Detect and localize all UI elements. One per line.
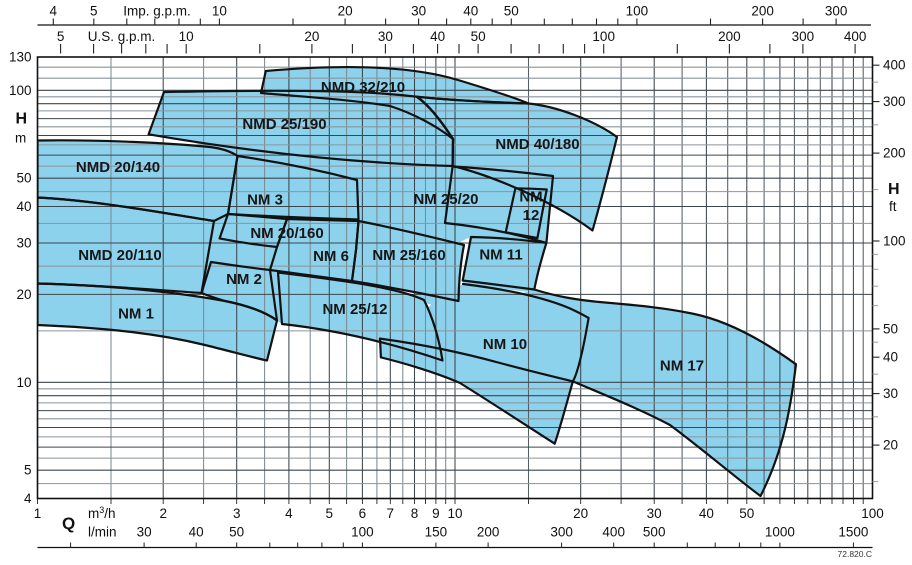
svg-text:100: 100: [626, 4, 649, 19]
svg-text:NMD 20/110: NMD 20/110: [78, 247, 161, 264]
svg-text:NM 11: NM 11: [479, 247, 522, 264]
svg-text:3: 3: [233, 506, 241, 521]
svg-text:20: 20: [338, 4, 353, 19]
svg-text:100: 100: [351, 525, 374, 540]
svg-text:5: 5: [57, 29, 65, 44]
svg-text:1000: 1000: [765, 525, 795, 540]
svg-text:5: 5: [326, 506, 334, 521]
svg-text:72.820.C: 72.820.C: [838, 549, 873, 559]
svg-text:40: 40: [430, 29, 445, 44]
svg-text:300: 300: [825, 4, 848, 19]
svg-text:NM 25/12: NM 25/12: [322, 301, 387, 318]
svg-text:1500: 1500: [838, 525, 868, 540]
svg-text:NM 25/160: NM 25/160: [372, 247, 445, 264]
svg-text:50: 50: [739, 506, 754, 521]
svg-text:10: 10: [179, 29, 194, 44]
svg-text:4: 4: [24, 491, 32, 506]
svg-text:50: 50: [504, 4, 519, 19]
svg-text:NM 1: NM 1: [118, 306, 154, 323]
svg-text:130: 130: [9, 50, 32, 65]
svg-text:2: 2: [159, 506, 167, 521]
svg-text:1: 1: [34, 506, 42, 521]
svg-text:20: 20: [16, 287, 31, 302]
svg-text:ft: ft: [889, 199, 897, 214]
svg-text:300: 300: [883, 94, 906, 109]
svg-text:12: 12: [523, 207, 540, 224]
svg-text:100: 100: [883, 234, 906, 249]
svg-text:40: 40: [883, 350, 898, 365]
svg-text:NM: NM: [519, 189, 542, 206]
svg-text:8: 8: [411, 506, 419, 521]
svg-text:10: 10: [447, 506, 462, 521]
svg-text:Q: Q: [62, 514, 75, 533]
svg-text:NM 25/20: NM 25/20: [413, 191, 478, 208]
svg-text:100: 100: [592, 29, 615, 44]
svg-text:NM 2: NM 2: [226, 271, 262, 288]
svg-text:20: 20: [573, 506, 588, 521]
svg-text:100: 100: [861, 506, 884, 521]
svg-text:40: 40: [699, 506, 714, 521]
svg-text:NM 6: NM 6: [313, 248, 349, 265]
svg-text:300: 300: [550, 525, 573, 540]
svg-text:300: 300: [792, 29, 815, 44]
svg-text:30: 30: [378, 29, 393, 44]
svg-text:H: H: [16, 111, 28, 128]
svg-text:30: 30: [883, 386, 898, 401]
svg-text:50: 50: [471, 29, 486, 44]
svg-text:200: 200: [883, 146, 906, 161]
svg-text:200: 200: [718, 29, 741, 44]
svg-text:100: 100: [9, 83, 32, 98]
svg-text:m: m: [15, 131, 26, 146]
svg-text:400: 400: [602, 525, 625, 540]
svg-text:200: 200: [477, 525, 500, 540]
svg-text:NMD 32/210: NMD 32/210: [321, 79, 405, 96]
svg-text:NMD 25/190: NMD 25/190: [242, 116, 326, 133]
svg-text:6: 6: [359, 506, 367, 521]
svg-text:U.S. g.p.m.: U.S. g.p.m.: [88, 29, 156, 44]
svg-text:50: 50: [229, 525, 244, 540]
svg-text:5: 5: [90, 4, 98, 19]
svg-text:50: 50: [16, 171, 31, 186]
svg-text:200: 200: [751, 4, 774, 19]
svg-text:150: 150: [425, 525, 448, 540]
svg-text:30: 30: [647, 506, 662, 521]
svg-text:30: 30: [137, 525, 152, 540]
svg-text:NM 17: NM 17: [660, 358, 704, 375]
svg-text:50: 50: [883, 321, 898, 336]
svg-text:4: 4: [285, 506, 293, 521]
svg-text:NMD 20/140: NMD 20/140: [76, 159, 160, 176]
svg-text:9: 9: [432, 506, 440, 521]
svg-text:7: 7: [387, 506, 395, 521]
svg-text:40: 40: [16, 199, 31, 214]
svg-text:20: 20: [883, 438, 898, 453]
svg-text:40: 40: [189, 525, 204, 540]
svg-text:4: 4: [50, 4, 58, 19]
svg-text:400: 400: [883, 58, 906, 73]
svg-text:10: 10: [212, 4, 227, 19]
svg-text:NM 20/160: NM 20/160: [250, 225, 323, 242]
svg-text:30: 30: [411, 4, 426, 19]
svg-text:20: 20: [304, 29, 319, 44]
svg-text:10: 10: [16, 375, 31, 390]
svg-text:l/min: l/min: [88, 525, 117, 540]
svg-text:H: H: [888, 181, 900, 198]
svg-text:5: 5: [24, 463, 32, 478]
svg-text:NM 10: NM 10: [483, 336, 527, 353]
svg-text:40: 40: [463, 4, 478, 19]
svg-text:NMD 40/180: NMD 40/180: [495, 136, 579, 153]
svg-text:500: 500: [643, 525, 666, 540]
svg-text:30: 30: [16, 236, 31, 251]
svg-text:400: 400: [844, 29, 867, 44]
svg-text:NM 3: NM 3: [247, 192, 283, 209]
svg-text:Imp. g.p.m.: Imp. g.p.m.: [123, 4, 191, 19]
